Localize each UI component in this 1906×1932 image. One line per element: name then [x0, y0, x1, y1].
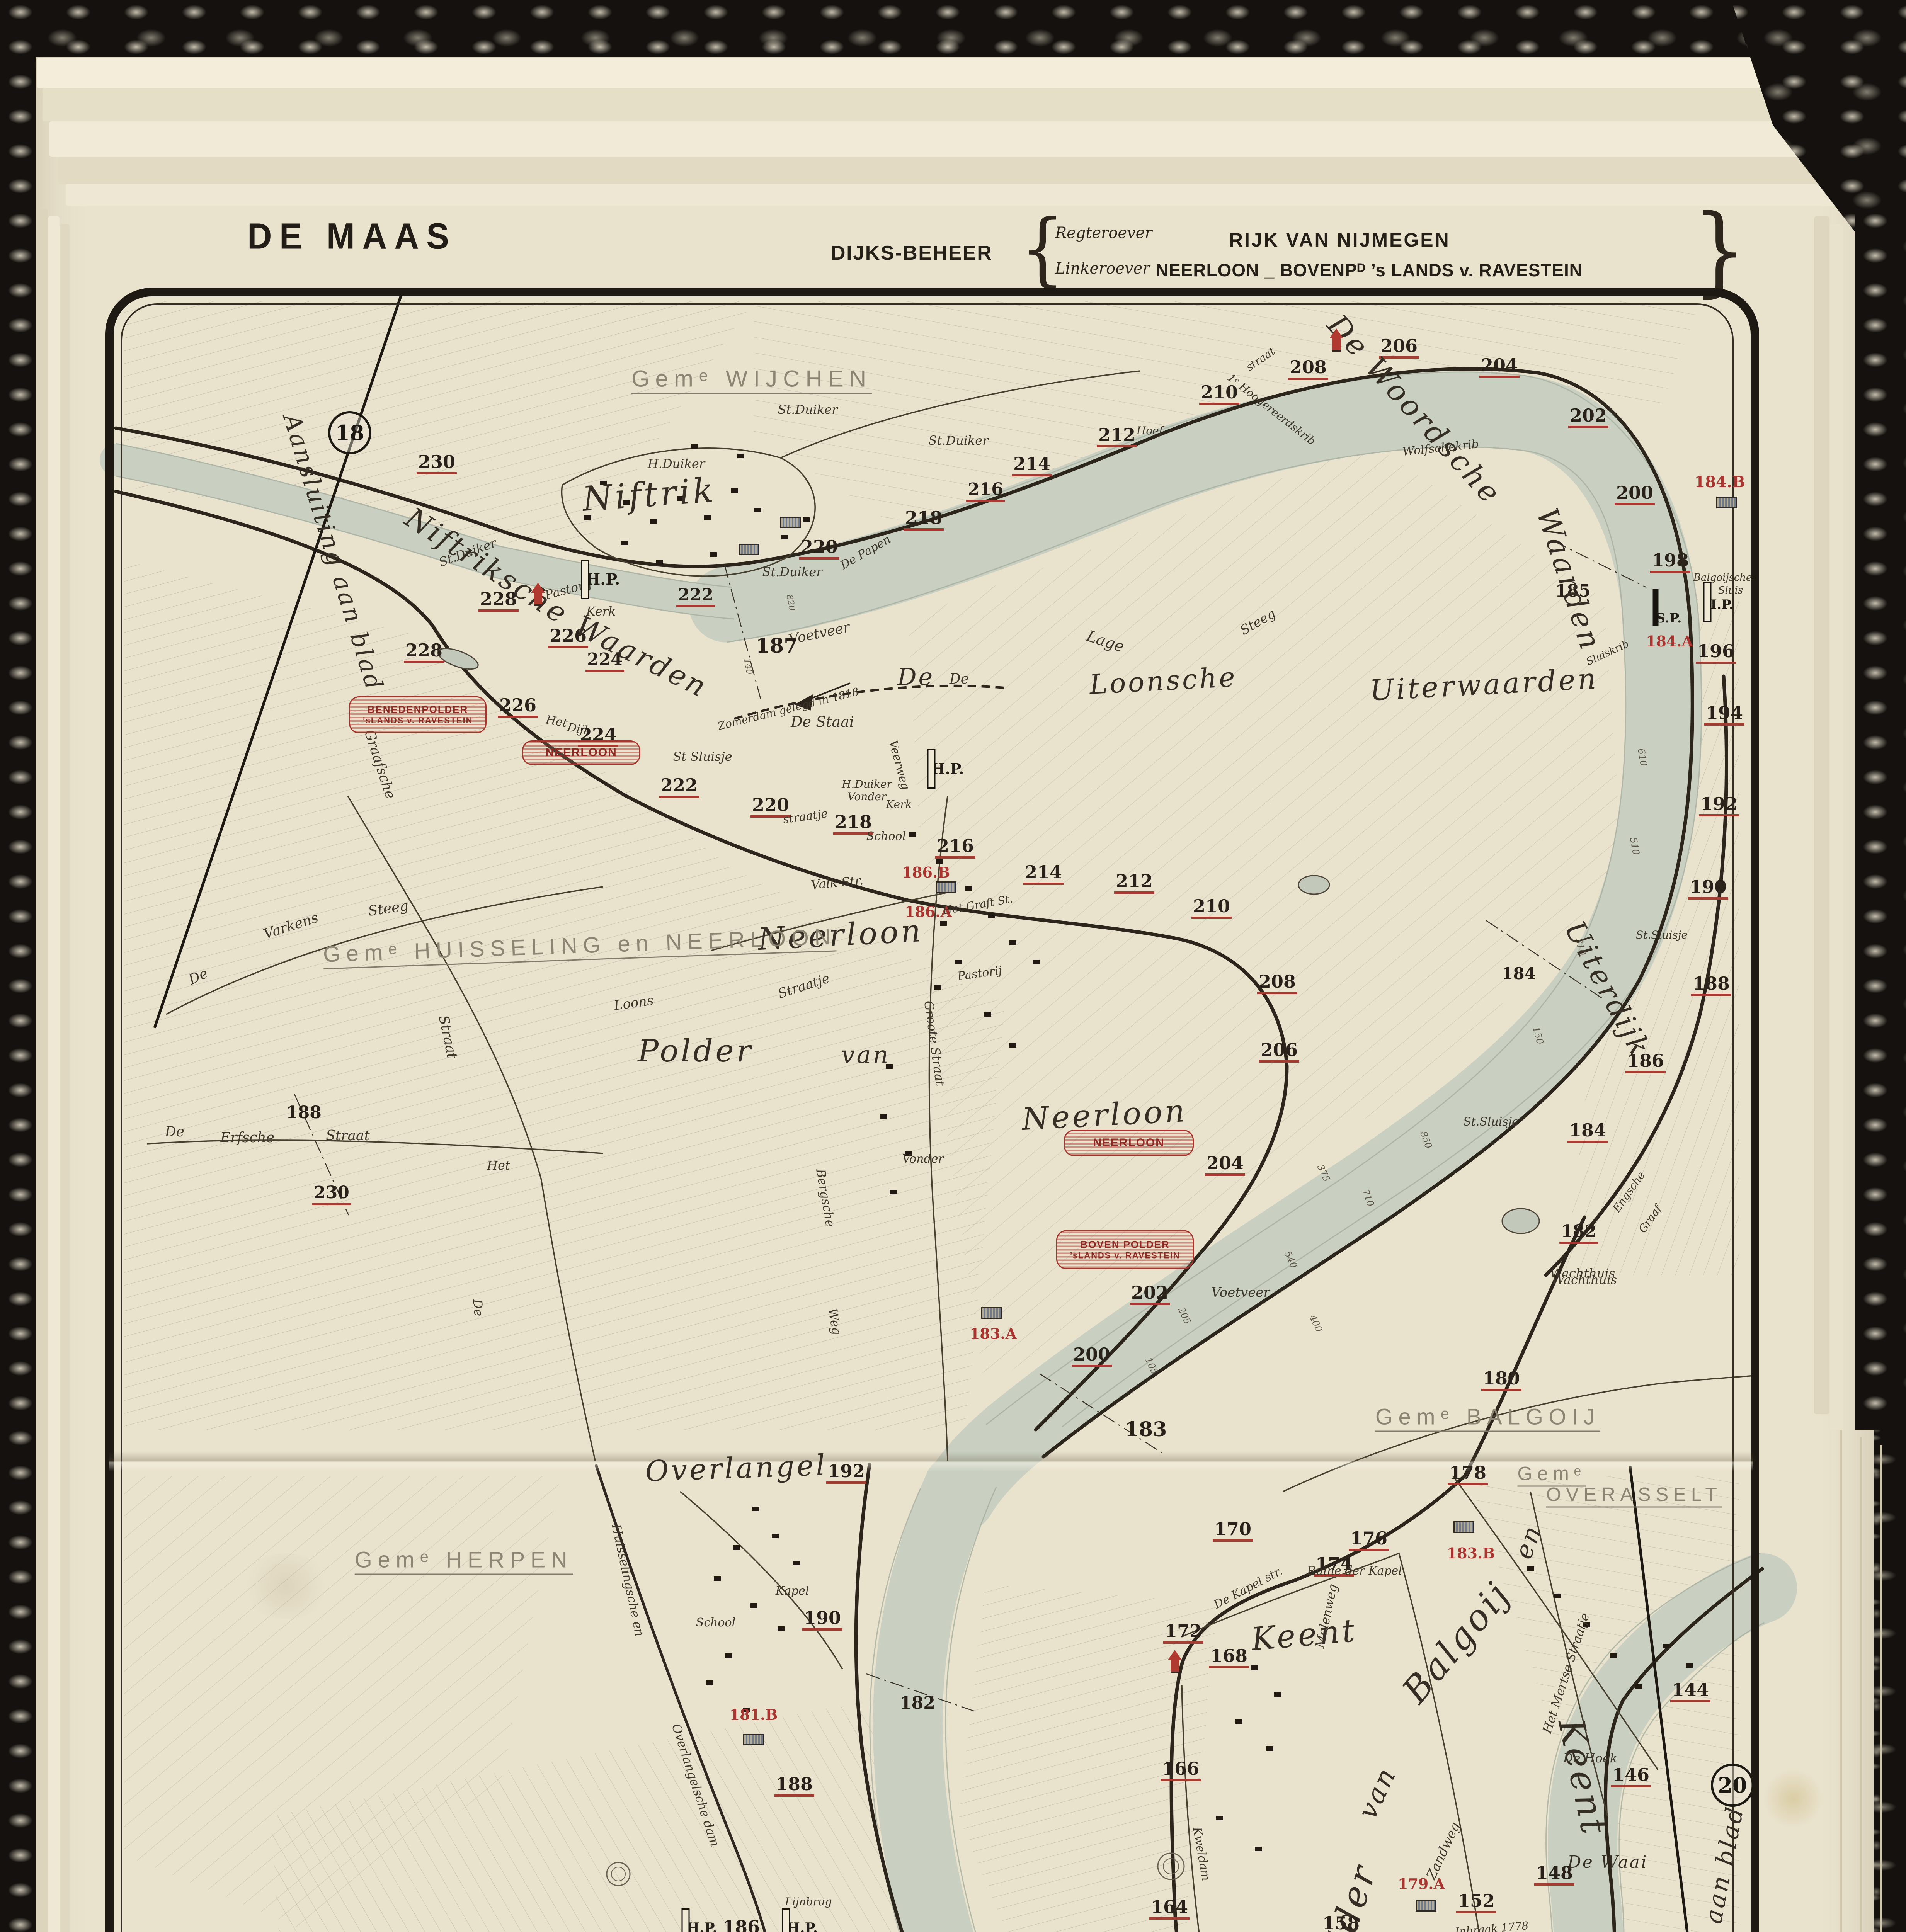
map-label: 212 — [1114, 872, 1154, 894]
map-label: Aansluiting aan blad — [1669, 1804, 1747, 1932]
map-label: Graafsche — [362, 728, 397, 800]
map-label: Balgoijsche- — [1693, 573, 1755, 583]
map-label: Waarden — [1532, 505, 1606, 655]
map-label: 180 — [1481, 1369, 1521, 1391]
peilmerksteen-icon — [936, 881, 956, 893]
map-label: 190 — [802, 1609, 842, 1631]
map-label: Kapel — [776, 1585, 809, 1597]
map-label: 205 — [1176, 1306, 1192, 1326]
map-label: Vonder — [847, 791, 886, 802]
map-label: Niftrik — [581, 473, 717, 516]
map-label: 188 — [1691, 975, 1731, 996]
map-label: 179.A — [1398, 1877, 1445, 1891]
map-label: Graaf — [1637, 1203, 1664, 1235]
map-label: van — [841, 1043, 890, 1067]
dijksmagazijn-icon — [1168, 1650, 1182, 1673]
map-label: 208 — [1257, 973, 1297, 994]
map-label: Gemᵉ WIJCHEN — [631, 367, 872, 394]
map-label: De Staai — [791, 714, 854, 729]
map-label: Het Graft St. — [942, 893, 1014, 916]
map-label: 164 — [1149, 1898, 1190, 1920]
map-label: 105 — [1144, 1356, 1159, 1376]
map-label: 226 — [498, 696, 538, 718]
adjacent-sheet-badge-18: 18 — [328, 411, 371, 454]
map-label: S.P. — [1656, 612, 1682, 625]
map-label: Kerk — [886, 799, 912, 810]
map-label: 187 — [756, 636, 798, 656]
map-label: 400 — [1308, 1313, 1324, 1333]
map-label: 218 — [904, 509, 944, 531]
peilmerksteen-icon — [1453, 1521, 1474, 1533]
map-label: 176 — [1349, 1529, 1389, 1551]
map-label: Gemᵉ BALGOIJ — [1375, 1406, 1600, 1432]
houten-peilschaal-icon — [782, 1908, 790, 1932]
map-label: 202 — [1568, 406, 1608, 428]
map-label: 228 — [404, 641, 444, 663]
map-label: De — [897, 665, 934, 689]
dijksmagazijn-icon — [1329, 328, 1343, 352]
dijksmagazijn-icon — [531, 583, 545, 606]
map-label: De Kapel str. — [1212, 1565, 1285, 1611]
polder-stamp: NEERLOON — [1064, 1130, 1194, 1156]
map-label: 200 — [1072, 1345, 1112, 1367]
map-label: Lage — [1084, 628, 1126, 655]
map-label: Zandweg — [1424, 1820, 1462, 1881]
map-label: St.Sluisje — [1636, 930, 1688, 940]
map-label: 510 — [1629, 837, 1641, 855]
map-label: 820 — [785, 594, 796, 611]
peilmerksteen-icon — [981, 1307, 1002, 1319]
map-label: 375 — [1315, 1163, 1331, 1183]
map-label: Inbraak 1778 — [1455, 1920, 1529, 1932]
houten-peilschaal-icon — [682, 1908, 690, 1932]
map-label: Ruine der Kapel — [1307, 1565, 1402, 1577]
map-label: 210 — [1191, 897, 1232, 919]
map-label: 610 — [1636, 748, 1649, 767]
map-label: 200 — [1615, 484, 1655, 505]
map-label: 152 — [1456, 1892, 1496, 1913]
map-label: 208 — [1288, 358, 1328, 380]
polder-stamp: NEERLOON — [522, 740, 640, 765]
adjacent-sheet-badge-20: 20 — [1711, 1764, 1754, 1807]
map-label: 188 — [774, 1775, 814, 1797]
map-label: Keent — [1250, 1615, 1359, 1656]
map-label: Voetveer — [1211, 1286, 1270, 1299]
map-label: 204 — [1205, 1154, 1245, 1176]
polder-stamp: BENEDENPOLDER’sLANDS v. RAVESTEIN — [349, 696, 487, 733]
map-label: H.Duiker — [648, 457, 705, 470]
houten-peilschaal-icon — [1703, 582, 1712, 622]
map-label: 168 — [1209, 1647, 1249, 1668]
map-label: Loons — [613, 994, 655, 1012]
steenen-peilschaal-icon — [1653, 589, 1659, 626]
map-label: 192 — [826, 1462, 866, 1484]
map-label: Groote Straat — [922, 1000, 947, 1087]
map-label: 158 — [1321, 1914, 1361, 1932]
map-label: Wachthuis — [1552, 1274, 1617, 1286]
map-label: 186 — [721, 1918, 761, 1932]
map-label: 188 — [286, 1104, 322, 1121]
map-label: Polder — [638, 1036, 754, 1066]
map-label: Pastorij — [957, 965, 1003, 983]
map-label: 216 — [966, 481, 1005, 502]
map-label: Bergsche — [814, 1168, 837, 1228]
map-label: Aansluiting aan blad — [279, 411, 386, 694]
peilmerksteen-icon — [1716, 497, 1737, 508]
map-label: Loonsche — [1089, 663, 1237, 698]
map-label: 184 — [1567, 1121, 1608, 1143]
map-label: 194 — [1704, 704, 1744, 726]
map-label: 172 — [1163, 1622, 1203, 1644]
map-label: School — [696, 1617, 735, 1629]
polder-stamp: BOVEN POLDER’sLANDS v. RAVESTEIN — [1056, 1230, 1194, 1269]
map-label: Gemᵉ HERPEN — [355, 1549, 573, 1575]
map-label: 190 — [1688, 878, 1728, 900]
map-label: 150 — [1531, 1026, 1545, 1045]
map-label: Balgoij — [1397, 1575, 1517, 1709]
map-label: 184 — [1502, 966, 1536, 982]
map-label: Straat — [436, 1014, 459, 1060]
map-label: Erfsche — [220, 1131, 274, 1145]
map-label: OVERASSELT — [1546, 1485, 1722, 1508]
map-label: De Hoek — [1563, 1752, 1617, 1764]
map-label: De — [187, 966, 210, 987]
peilmerksteen-icon — [739, 544, 759, 555]
map-label: 220 — [799, 538, 839, 560]
map-label: H.Duiker — [842, 779, 892, 790]
map-label: Varkens — [262, 911, 320, 941]
map-label: Kweldam — [1191, 1826, 1212, 1882]
map-label: Engsche — [1611, 1170, 1647, 1214]
map-label: 192 — [1699, 795, 1739, 816]
map-label: H.P. — [931, 762, 964, 776]
map-label: H.P. — [585, 572, 620, 587]
map-label: straat — [1244, 346, 1277, 373]
map-label: De Papen — [839, 534, 893, 571]
map-label: Keent — [1553, 1716, 1612, 1840]
map-label: De — [471, 1298, 485, 1316]
map-label: 144 — [1670, 1681, 1710, 1702]
houten-peilschaal-icon — [927, 749, 936, 789]
map-label: 140 — [742, 658, 754, 675]
peilmerksteen-icon — [743, 1734, 764, 1745]
map-label: St.Duiker — [762, 566, 822, 578]
map-label: 206 — [1259, 1041, 1299, 1063]
map-label: 182 — [1559, 1223, 1598, 1244]
map-label: 184.B — [1694, 474, 1745, 490]
map-label: Overlangelsche dam — [670, 1722, 721, 1848]
map-label: 204 — [1479, 356, 1520, 378]
map-label: Weg — [826, 1307, 843, 1336]
map-label: van — [1355, 1763, 1401, 1823]
peilmerksteen-icon — [780, 517, 801, 528]
map-label: 1ᵉ Hoogereerdskrib — [1225, 372, 1317, 447]
map-label: 216 — [935, 837, 975, 859]
map-label: 183.B — [1447, 1546, 1495, 1561]
map-label: Het — [487, 1159, 510, 1172]
map-label: 166 — [1161, 1760, 1201, 1781]
map-label: 212 — [1097, 426, 1137, 447]
map-label: 170 — [1213, 1520, 1253, 1542]
map-label: Hoef — [1137, 425, 1163, 436]
atlas-scan-page: DE MAAS DIJKS-BEHEER { Regteroever Linke… — [0, 0, 1906, 1932]
map-label: Neerloon — [1021, 1095, 1188, 1135]
map-label: Steeg — [368, 899, 410, 918]
map-label: Uiterwaarden — [1369, 665, 1599, 705]
houten-peilschaal-icon — [581, 560, 589, 599]
map-label: 196 — [1696, 642, 1736, 664]
map-label: Vonder — [902, 1153, 944, 1165]
map-labels-layer: Gemᵉ WIJCHENNiftrikH.DuikerSt.DuikerSt.D… — [0, 0, 1906, 1932]
map-label: St.Duiker — [928, 434, 988, 447]
map-label: Straatje — [776, 971, 831, 1000]
map-label: De Waai — [1567, 1854, 1648, 1871]
map-label: St.Sluisje — [1463, 1116, 1519, 1128]
map-label: 214 — [1023, 863, 1064, 885]
map-label: 181.B — [730, 1708, 778, 1722]
map-label: Steeg — [1238, 607, 1278, 638]
map-label: Sluis — [1718, 585, 1743, 595]
map-label: 183.A — [970, 1327, 1017, 1341]
map-label: 850 — [1419, 1130, 1433, 1150]
map-label: St.Duiker — [778, 403, 837, 416]
map-label: 184.A — [1646, 634, 1693, 649]
map-label: 198 — [1650, 551, 1690, 573]
map-label: Huisselingsche en — [610, 1523, 646, 1638]
map-label: 222 — [659, 776, 699, 798]
map-label: 710 — [1361, 1188, 1375, 1207]
map-label: 178 — [1448, 1464, 1488, 1485]
map-label: De — [165, 1125, 184, 1139]
map-label: Lijnbrug — [785, 1896, 832, 1907]
map-label: 183 — [1125, 1420, 1167, 1440]
map-label: St Sluisje — [673, 750, 732, 763]
map-label: 230 — [312, 1184, 351, 1205]
map-label: Straat — [326, 1129, 370, 1143]
peilmerksteen-icon — [1416, 1900, 1436, 1912]
map-label: Overlangel — [645, 1451, 827, 1486]
map-label: School — [866, 831, 906, 842]
map-label: 222 — [676, 587, 715, 607]
map-label: 202 — [1130, 1284, 1170, 1305]
map-label: 214 — [1012, 455, 1052, 476]
map-label: Het — [545, 714, 568, 729]
map-label: 186.B — [902, 865, 950, 880]
map-label: H.P. — [686, 1921, 717, 1932]
map-label: 146 — [1611, 1766, 1651, 1787]
map-label: Valk Str. — [810, 874, 864, 891]
map-label: en — [1511, 1521, 1546, 1562]
map-label: 540 — [1283, 1250, 1298, 1270]
map-label: H.P. — [787, 1921, 818, 1932]
map-label: De — [950, 672, 969, 686]
map-label: 182 — [900, 1695, 935, 1712]
map-label: 230 — [417, 453, 457, 474]
map-label: Gemᵉ HUISSELING en NEERLOON — [323, 925, 837, 969]
